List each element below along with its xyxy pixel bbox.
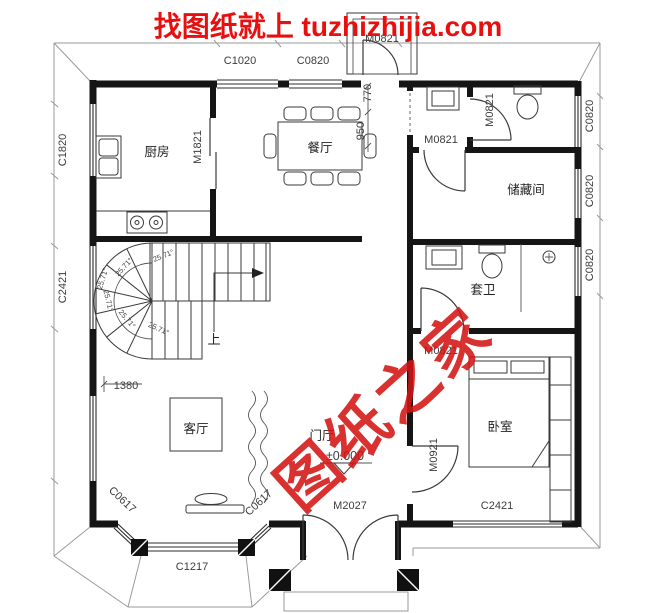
doors (210, 40, 511, 560)
door-label-kitchen: M1821 (192, 130, 204, 164)
ensuite-toilet-tank (479, 245, 505, 253)
sofa (186, 505, 244, 513)
window-label-c2421-left: C2421 (57, 271, 69, 303)
floor-plan-drawing: C1020 C0820 C1820 C2421 C0820 C0820 C082… (0, 0, 650, 613)
door-label-bedroom: M0921 (428, 438, 440, 472)
toilet-bowl (517, 95, 538, 119)
living-fixtures (170, 391, 268, 513)
dim-950: 950 (355, 122, 367, 140)
window-label-c1217: C1217 (176, 561, 208, 573)
window-label-c0820-r2: C0820 (584, 175, 596, 207)
site-watermark-title: 找图纸就上 tuzhizhijia.com (154, 10, 502, 42)
storage-door (424, 150, 465, 191)
kitchen-sink (96, 136, 121, 178)
door-label-wc: M0821 (484, 93, 496, 127)
window-c2421-bedroom (453, 521, 562, 527)
ensuite-basin (426, 246, 462, 269)
stair-angle-3: 25.71° (95, 267, 110, 290)
window-c0820-right2 (575, 169, 581, 218)
stair-up-label: 上 (207, 332, 220, 347)
entry-steps (284, 592, 408, 611)
window-label-c1020: C1020 (224, 55, 256, 67)
room-label-storage: 储藏间 (507, 182, 545, 197)
window-label-c0617-right: C0617 (243, 488, 275, 519)
ensuite-fixtures (426, 244, 555, 312)
room-label-kitchen: 厨房 (144, 144, 169, 159)
room-label-dining: 餐厅 (307, 140, 332, 155)
window-label-c2421-bedroom: C2421 (481, 500, 513, 512)
window-label-c0617-left: C0617 (106, 485, 138, 516)
wardrobe (550, 357, 571, 522)
bay-window-front (147, 543, 239, 551)
stove (127, 212, 167, 233)
stair-direction-arrow (214, 273, 252, 332)
dim-1380: 1380 (114, 380, 138, 392)
window-c1820 (90, 104, 96, 176)
balcony-door (363, 40, 398, 75)
side-table (195, 494, 227, 505)
window-living-left (90, 396, 96, 481)
window-c0820-right3 (575, 247, 581, 296)
window-label-c0820-r1: C0820 (584, 100, 596, 132)
room-label-ensuite: 套卫 (470, 282, 495, 297)
door-label-lobby: M0821 (424, 134, 458, 146)
staircase (94, 243, 270, 359)
door-label-entry: M2027 (333, 500, 367, 512)
ensuite-toilet-bowl (482, 254, 502, 278)
window-c0820-right1 (575, 96, 581, 147)
window-c1020 (217, 80, 278, 88)
floor-plan-page: C1020 C0820 C1820 C2421 C0820 C0820 C082… (0, 0, 650, 613)
room-label-bedroom: 卧室 (487, 419, 512, 434)
window-c0820-top (289, 80, 342, 88)
window-label-c0820-r3: C0820 (584, 249, 596, 281)
window-label-c0820-top: C0820 (297, 55, 329, 67)
kitchen-sliding-door (210, 118, 216, 189)
bedroom-fixtures (469, 357, 571, 522)
window-label-c1820: C1820 (57, 134, 69, 166)
entry-double-door (303, 515, 398, 560)
room-label-living: 客厅 (183, 421, 208, 436)
stair-angle-6: 25.71° (147, 320, 171, 337)
dim-770: 770 (362, 84, 374, 102)
